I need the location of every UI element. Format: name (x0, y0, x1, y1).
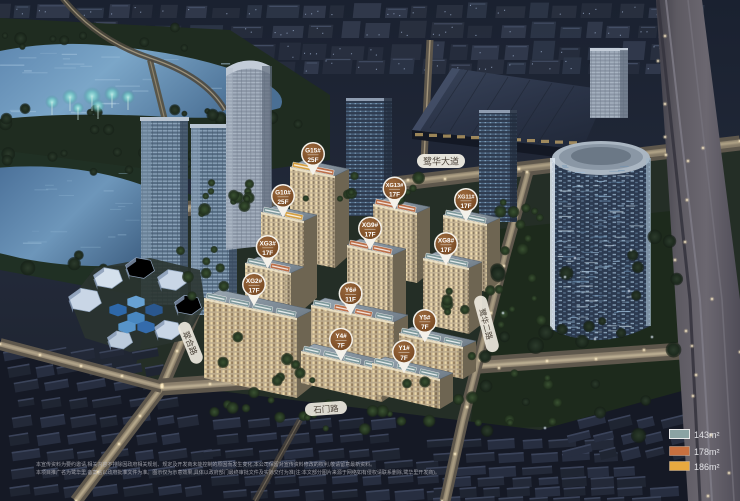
svg-text:11F: 11F (345, 297, 356, 304)
svg-text:XG13#: XG13# (386, 183, 404, 189)
svg-text:7F: 7F (337, 343, 345, 350)
svg-text:178m²: 178m² (694, 447, 720, 457)
svg-text:7F: 7F (400, 355, 408, 362)
svg-text:17F: 17F (460, 203, 471, 210)
svg-text:Y1#: Y1# (398, 345, 410, 352)
svg-text:25F: 25F (277, 199, 288, 206)
svg-text:Y5#: Y5# (419, 314, 431, 321)
svg-text:Y6#: Y6# (345, 287, 357, 294)
svg-text:G15#: G15# (305, 147, 321, 154)
svg-text:XG2#: XG2# (246, 278, 263, 285)
svg-text:XG11#: XG11# (457, 194, 475, 200)
svg-text:本项目推广名为鹭华里,备案名以政府批准文件为准。图示仅为示意: 本项目推广名为鹭华里,备案名以政府批准文件为准。图示仅为示意效果,具体以政府部门… (36, 469, 440, 476)
svg-text:17F: 17F (389, 192, 400, 199)
svg-text:17F: 17F (262, 250, 273, 257)
svg-text:石门路: 石门路 (313, 403, 339, 415)
svg-text:17F: 17F (248, 288, 259, 295)
svg-text:鹭华大道: 鹭华大道 (423, 156, 459, 167)
svg-text:17F: 17F (440, 247, 451, 254)
svg-text:XG9#: XG9# (362, 222, 379, 229)
svg-text:17F: 17F (364, 232, 375, 239)
svg-text:XG3#: XG3# (260, 240, 277, 247)
svg-text:本宣传资料为要约邀请,相关内容不排除因政府相关规划、规定及开: 本宣传资料为要约邀请,相关内容不排除因政府相关规划、规定及开发商未能控制的原因而… (36, 461, 375, 468)
svg-text:25F: 25F (307, 157, 318, 164)
svg-text:XG8#: XG8# (438, 237, 455, 244)
svg-text:186m²: 186m² (694, 462, 720, 472)
svg-text:143m²: 143m² (694, 430, 720, 440)
svg-text:7F: 7F (421, 324, 429, 331)
svg-text:Y4#: Y4# (335, 333, 347, 340)
svg-text:G10#: G10# (275, 189, 291, 196)
